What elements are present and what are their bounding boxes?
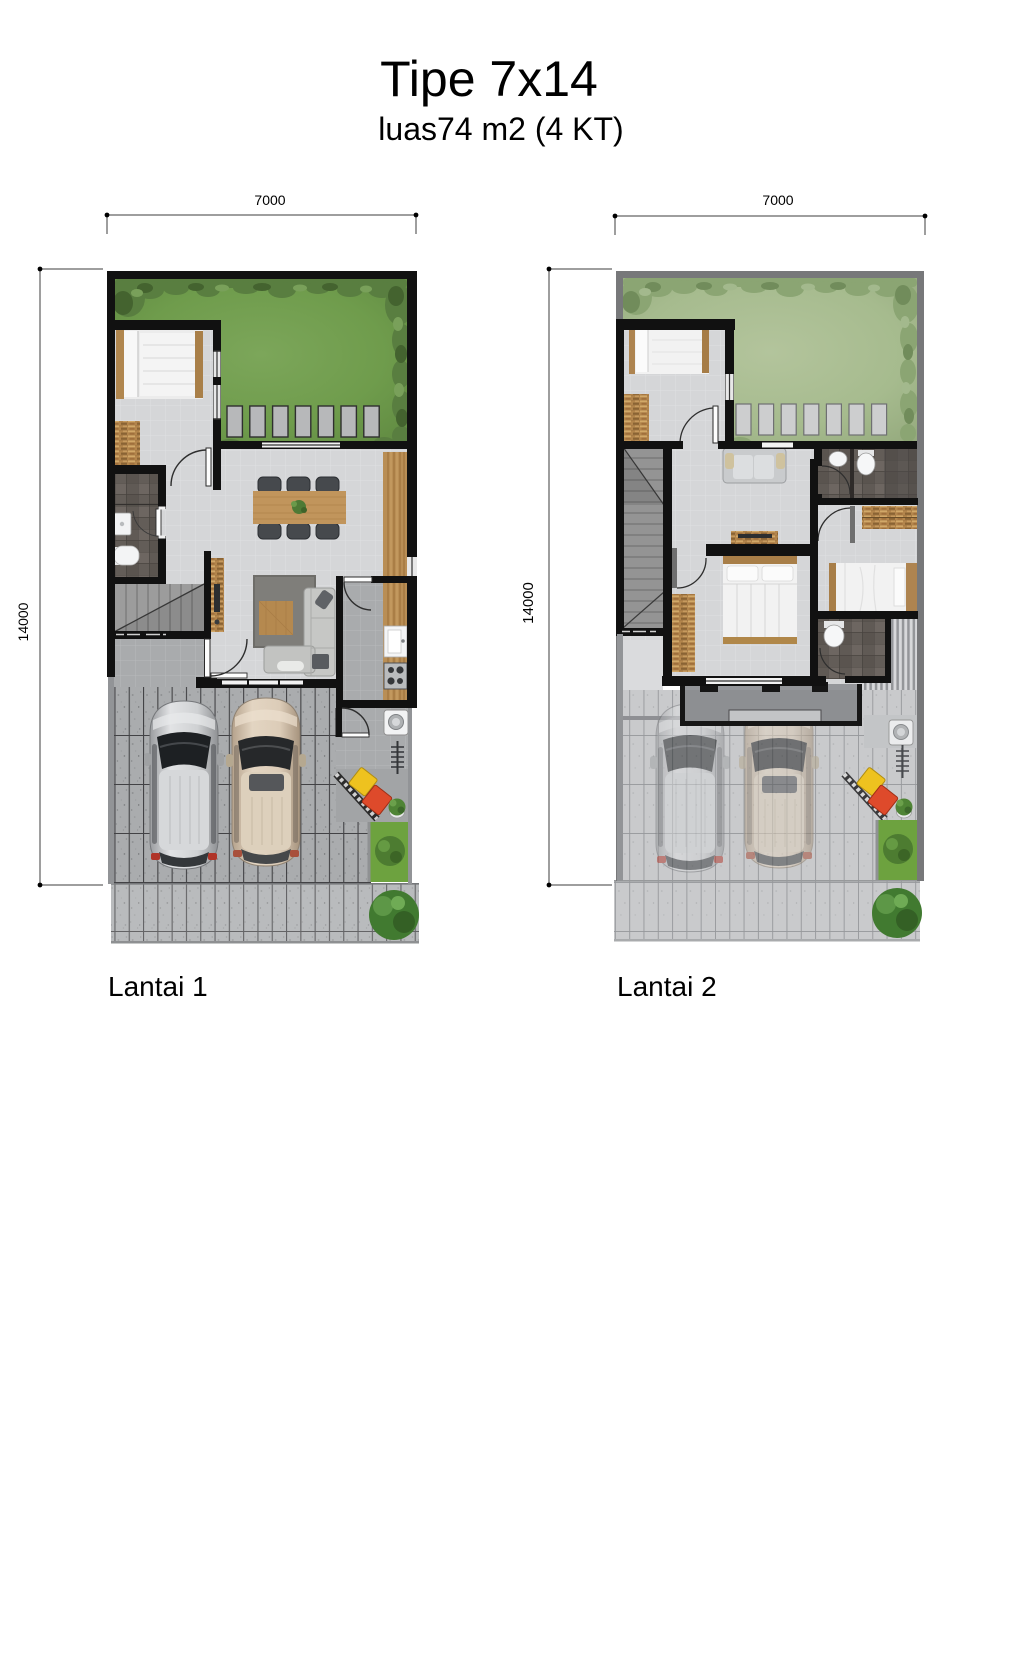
svg-text:Lantai 1: Lantai 1 — [108, 971, 208, 1002]
svg-text:14000: 14000 — [15, 602, 31, 641]
svg-text:Tipe 7x14: Tipe 7x14 — [380, 51, 598, 107]
svg-text:luas74 m2 (4 KT): luas74 m2 (4 KT) — [378, 111, 623, 147]
svg-text:Lantai 2: Lantai 2 — [617, 971, 717, 1002]
svg-text:7000: 7000 — [762, 192, 793, 208]
svg-text:7000: 7000 — [254, 192, 285, 208]
svg-text:14000: 14000 — [520, 582, 537, 624]
